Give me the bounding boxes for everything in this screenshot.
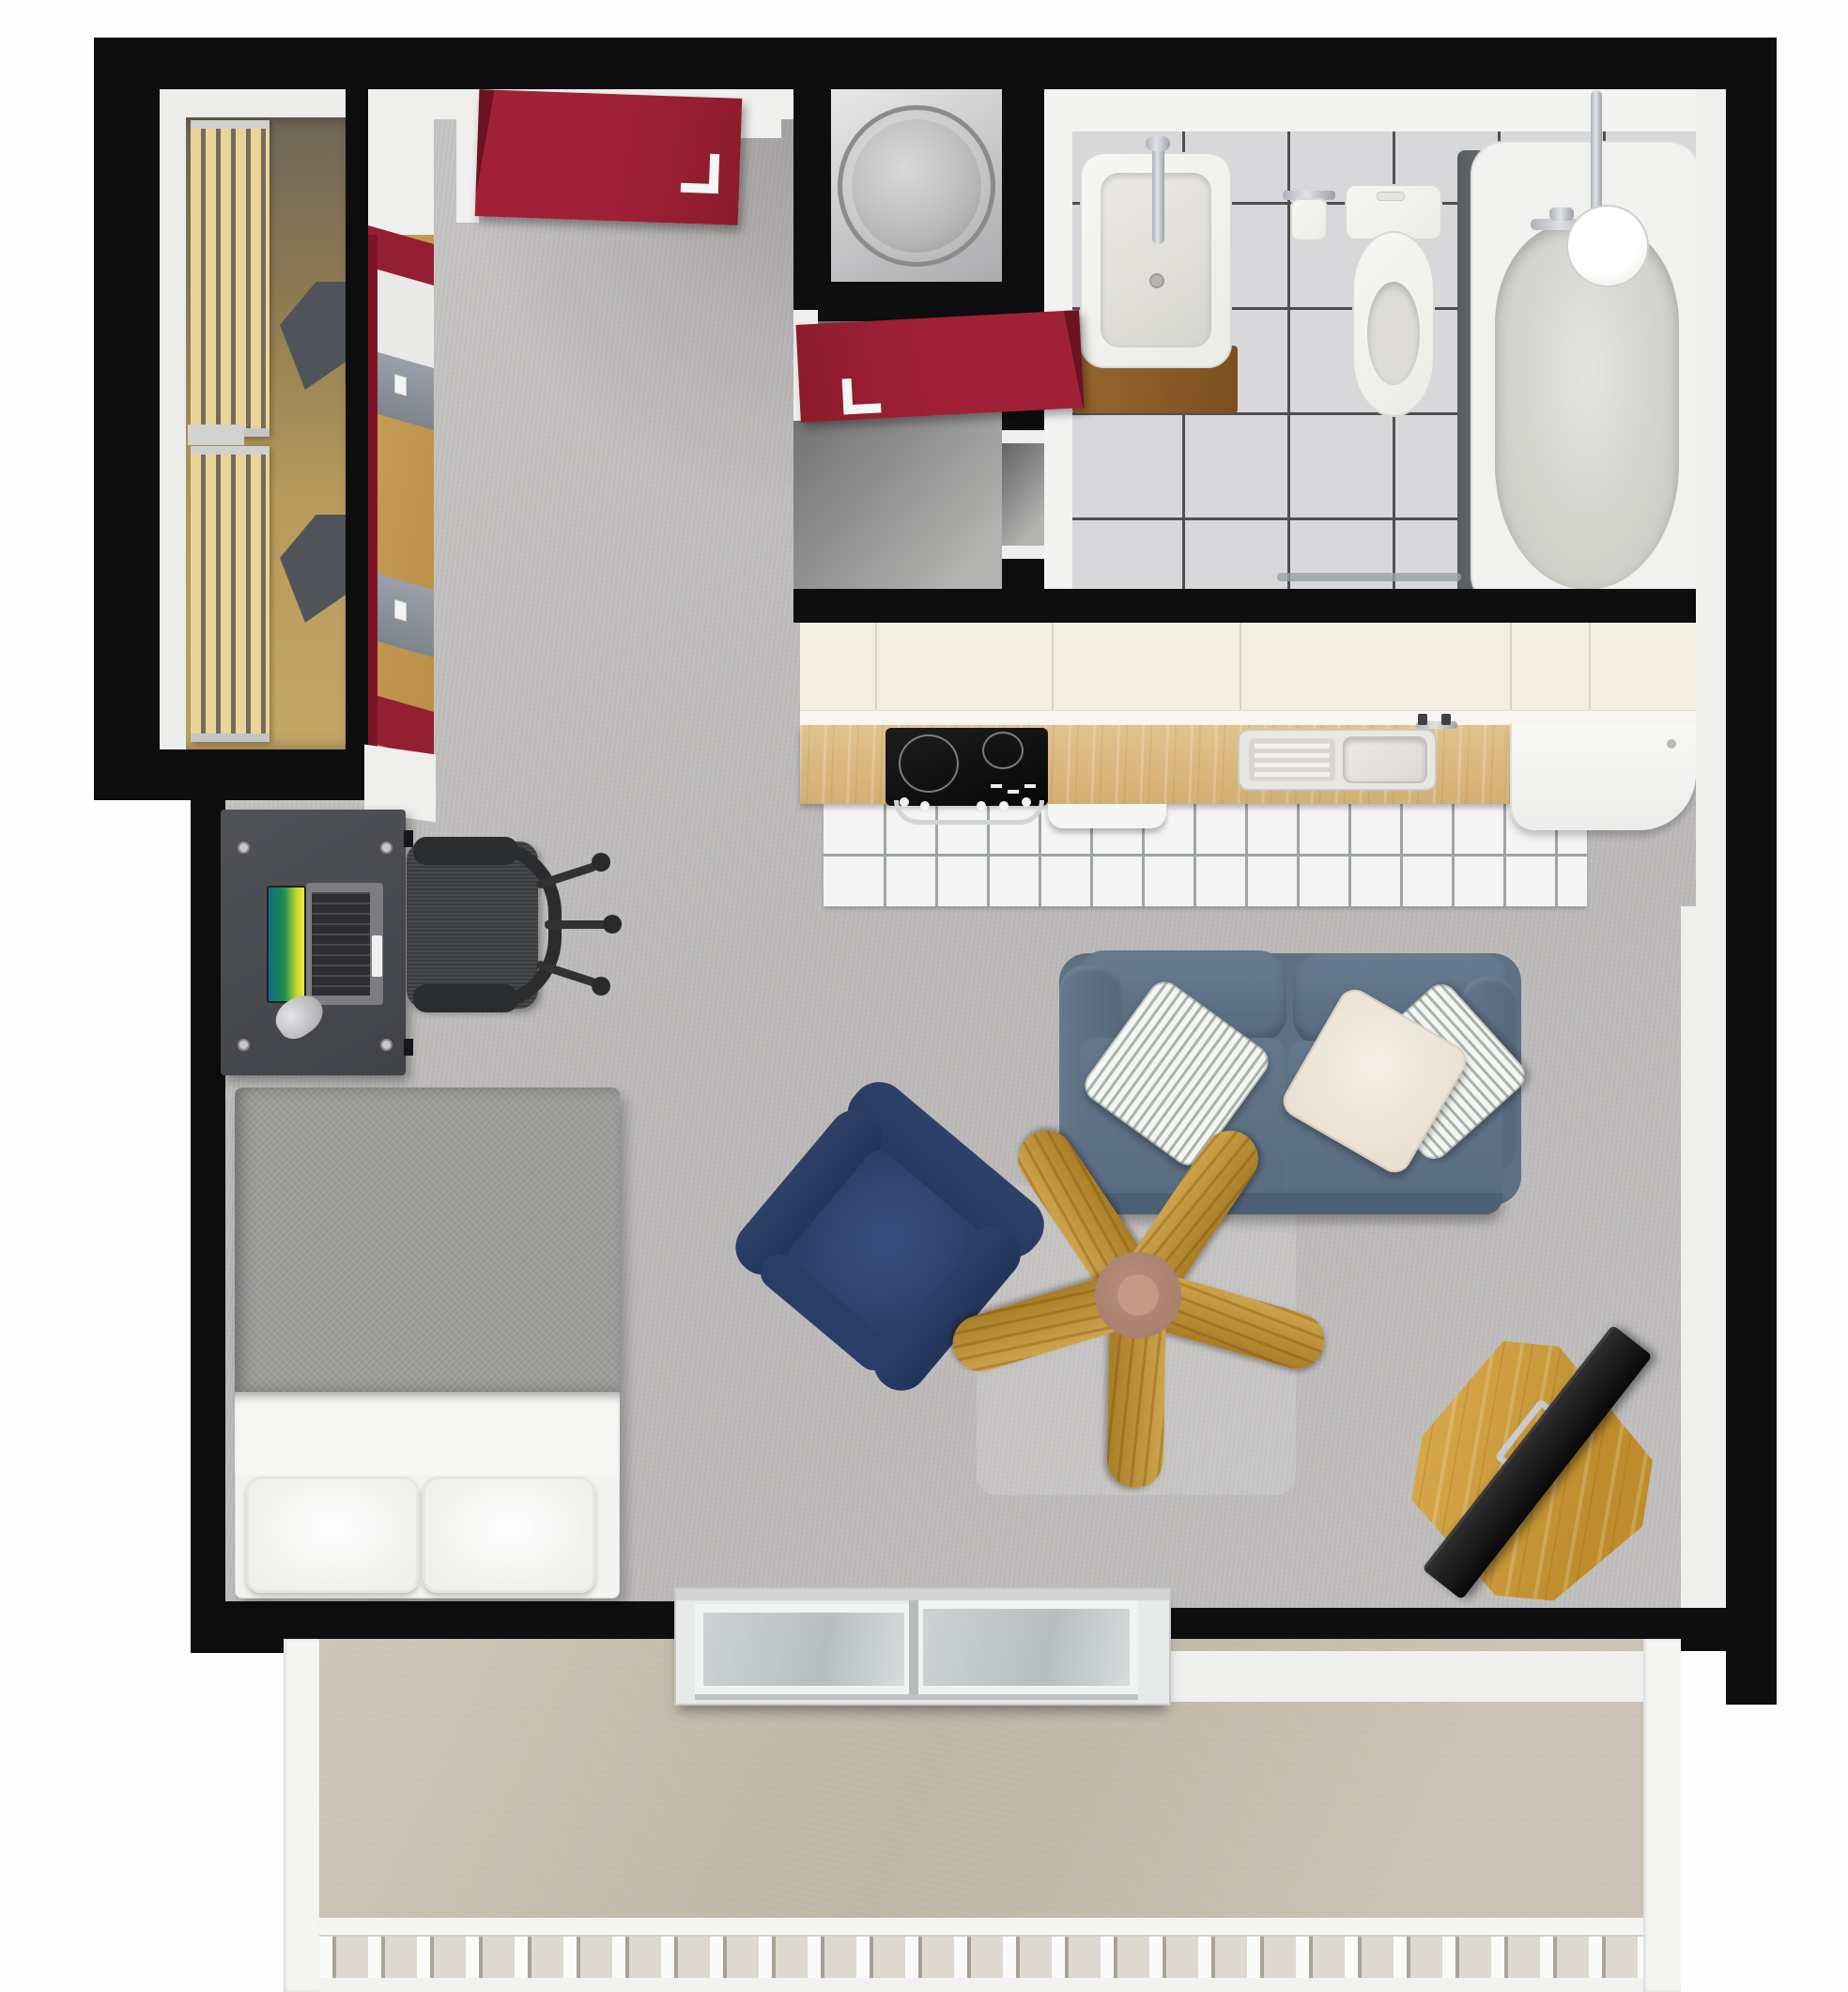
toilet-button: [1377, 192, 1405, 201]
wall-nook-left: [793, 89, 831, 310]
closet-slat-rack-lower: [191, 446, 269, 742]
sliding-door: [674, 1587, 1171, 1706]
door-jamb-1b: [740, 89, 781, 138]
floorplan-canvas: [0, 0, 1848, 1992]
railing-balusters: [319, 1937, 1643, 1978]
tp-roll: [1290, 198, 1328, 241]
wall-face-right: [1696, 89, 1726, 1608]
kitchen-sink: [1238, 729, 1437, 791]
shower-pipe: [1591, 90, 1602, 214]
bed-pillow-left: [246, 1476, 419, 1593]
red-wall-unit: [368, 235, 434, 759]
wall-face-bottom-right: [1171, 1651, 1643, 1702]
laptop-keyboard: [312, 892, 370, 996]
balcony-railing: [319, 1918, 1643, 1937]
laptop-touchpad: [372, 935, 382, 977]
shower-tap-knob: [1549, 208, 1574, 221]
chair-leg-2: [545, 920, 607, 929]
balcony-wall-right: [1643, 1639, 1681, 1992]
sink-drain: [1149, 273, 1164, 288]
room-bathroom: [1044, 89, 1726, 623]
rack-bracket: [188, 425, 244, 445]
shower-head: [1566, 205, 1649, 287]
wall-closet-bottom: [94, 749, 394, 800]
wall-top: [94, 38, 1777, 89]
railing-base: [319, 1978, 1643, 1992]
cooktop: [885, 728, 1048, 806]
wall-right: [1726, 38, 1777, 1705]
sliding-door-track: [695, 1694, 1138, 1700]
wall-face-main-left: [368, 89, 434, 238]
bathroom-door-jamb-b: [1002, 546, 1044, 559]
wall-bathroom-left-lower: [1002, 549, 1044, 623]
bed-sheet: [235, 1392, 620, 1475]
bed-pillow-right: [423, 1476, 595, 1593]
bed-blanket: [235, 1088, 620, 1392]
water-heater: [838, 105, 995, 267]
sliding-door-panel-left: [695, 1604, 913, 1694]
door-main-open: [475, 89, 743, 225]
closet-slat-rack-upper: [191, 120, 269, 437]
wall-closet-left: [94, 38, 160, 800]
sink-faucet-head: [1146, 136, 1170, 151]
wall-closet-divider: [346, 89, 368, 749]
door-entry-open: [795, 310, 1084, 423]
shower-screen: [1277, 573, 1461, 581]
bathroom-door-jamb-a: [1002, 430, 1044, 443]
bathroom-door-opening: [1002, 440, 1044, 549]
ceiling-fan: [920, 1080, 1352, 1512]
kitchen-back-wall: [793, 589, 1726, 623]
toilet-bowl-inner: [1367, 282, 1420, 385]
kitchen-tile-grout: [824, 854, 1587, 857]
sink-faucet: [1152, 141, 1164, 244]
laptop-screen: [267, 886, 306, 1003]
sliding-door-mullion: [909, 1600, 918, 1694]
bathroom-wall-face-top: [1044, 89, 1726, 131]
dishwasher-front: [1048, 804, 1166, 828]
wall-face-right-lower: [1681, 906, 1696, 1608]
balcony-wall-left: [284, 1639, 319, 1992]
sliding-door-panel-right: [915, 1600, 1138, 1694]
room-kitchen: [793, 589, 1726, 906]
